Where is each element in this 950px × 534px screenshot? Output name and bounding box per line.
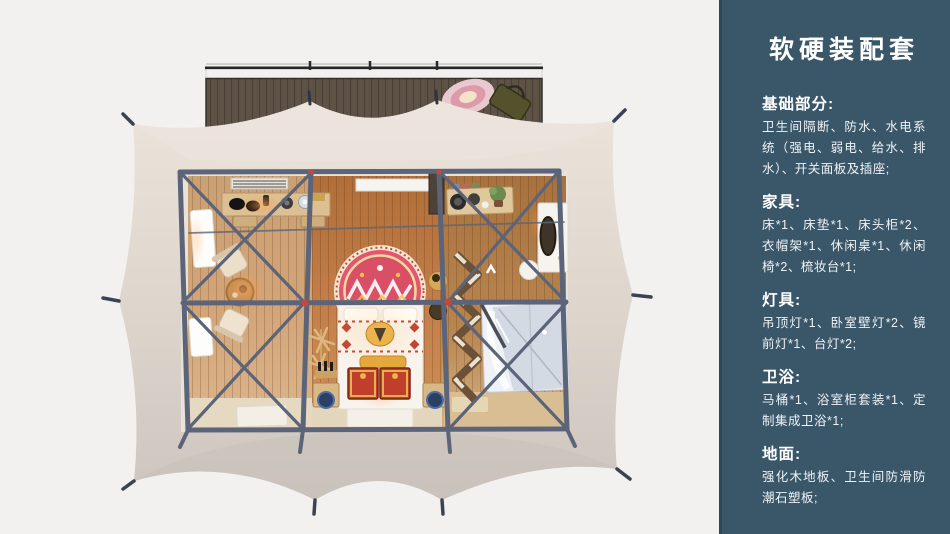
stool (233, 216, 257, 227)
section-body: 卫生间隔断、防水、水电系统（强电、弱电、给水、排水）、开关面板及插座; (762, 117, 926, 180)
box (312, 193, 325, 201)
section-heading: 地面: (762, 442, 926, 464)
tent-floorplan-illustration (0, 0, 719, 534)
stool (301, 216, 325, 227)
section-body: 马桶*1、浴室柜套装*1、定制集成卫浴*1; (762, 390, 926, 432)
section-bathroom: 卫浴: 马桶*1、浴室柜套装*1、定制集成卫浴*1; (762, 365, 926, 432)
drum (318, 392, 334, 408)
drum (427, 392, 443, 408)
ceiling-panel (356, 179, 432, 191)
section-heading: 卫浴: (762, 365, 926, 387)
top-beam (180, 171, 559, 172)
nightstand-crate (313, 383, 339, 408)
section-heading: 灯具: (762, 288, 926, 310)
bottom-beam (188, 429, 567, 430)
door-mat (237, 405, 288, 427)
tent-render-area (0, 0, 719, 534)
section-furniture: 家具: 床*1、床垫*1、床头柜*2、衣帽架*1、休闲桌*1、休闲椅*2、梳妆台… (762, 190, 926, 278)
section-lighting: 灯具: 吊顶灯*1、卧室壁灯*2、镜前灯*1、台灯*2; (762, 288, 926, 355)
panel-title: 软硬装配套 (762, 30, 926, 66)
section-heading: 家具: (762, 190, 926, 212)
section-flooring: 地面: 强化木地板、卫生间防滑防潮石塑板; (762, 442, 926, 509)
mid-beam (183, 302, 566, 303)
section-heading: 基础部分: (762, 92, 926, 114)
section-body: 强化木地板、卫生间防滑防潮石塑板; (762, 467, 926, 509)
section-body: 床*1、床垫*1、床头柜*2、衣帽架*1、休闲桌*1、休闲椅*2、梳妆台*1; (762, 215, 926, 278)
door-mat (347, 408, 413, 427)
section-basics: 基础部分: 卫生间隔断、防水、水电系统（强电、弱电、给水、排水）、开关面板及插座… (762, 92, 926, 180)
section-body: 吊顶灯*1、卧室壁灯*2、镜前灯*1、台灯*2; (762, 313, 926, 355)
spec-panel: 软硬装配套 基础部分: 卫生间隔断、防水、水电系统（强电、弱电、给水、排水）、开… (719, 0, 950, 534)
